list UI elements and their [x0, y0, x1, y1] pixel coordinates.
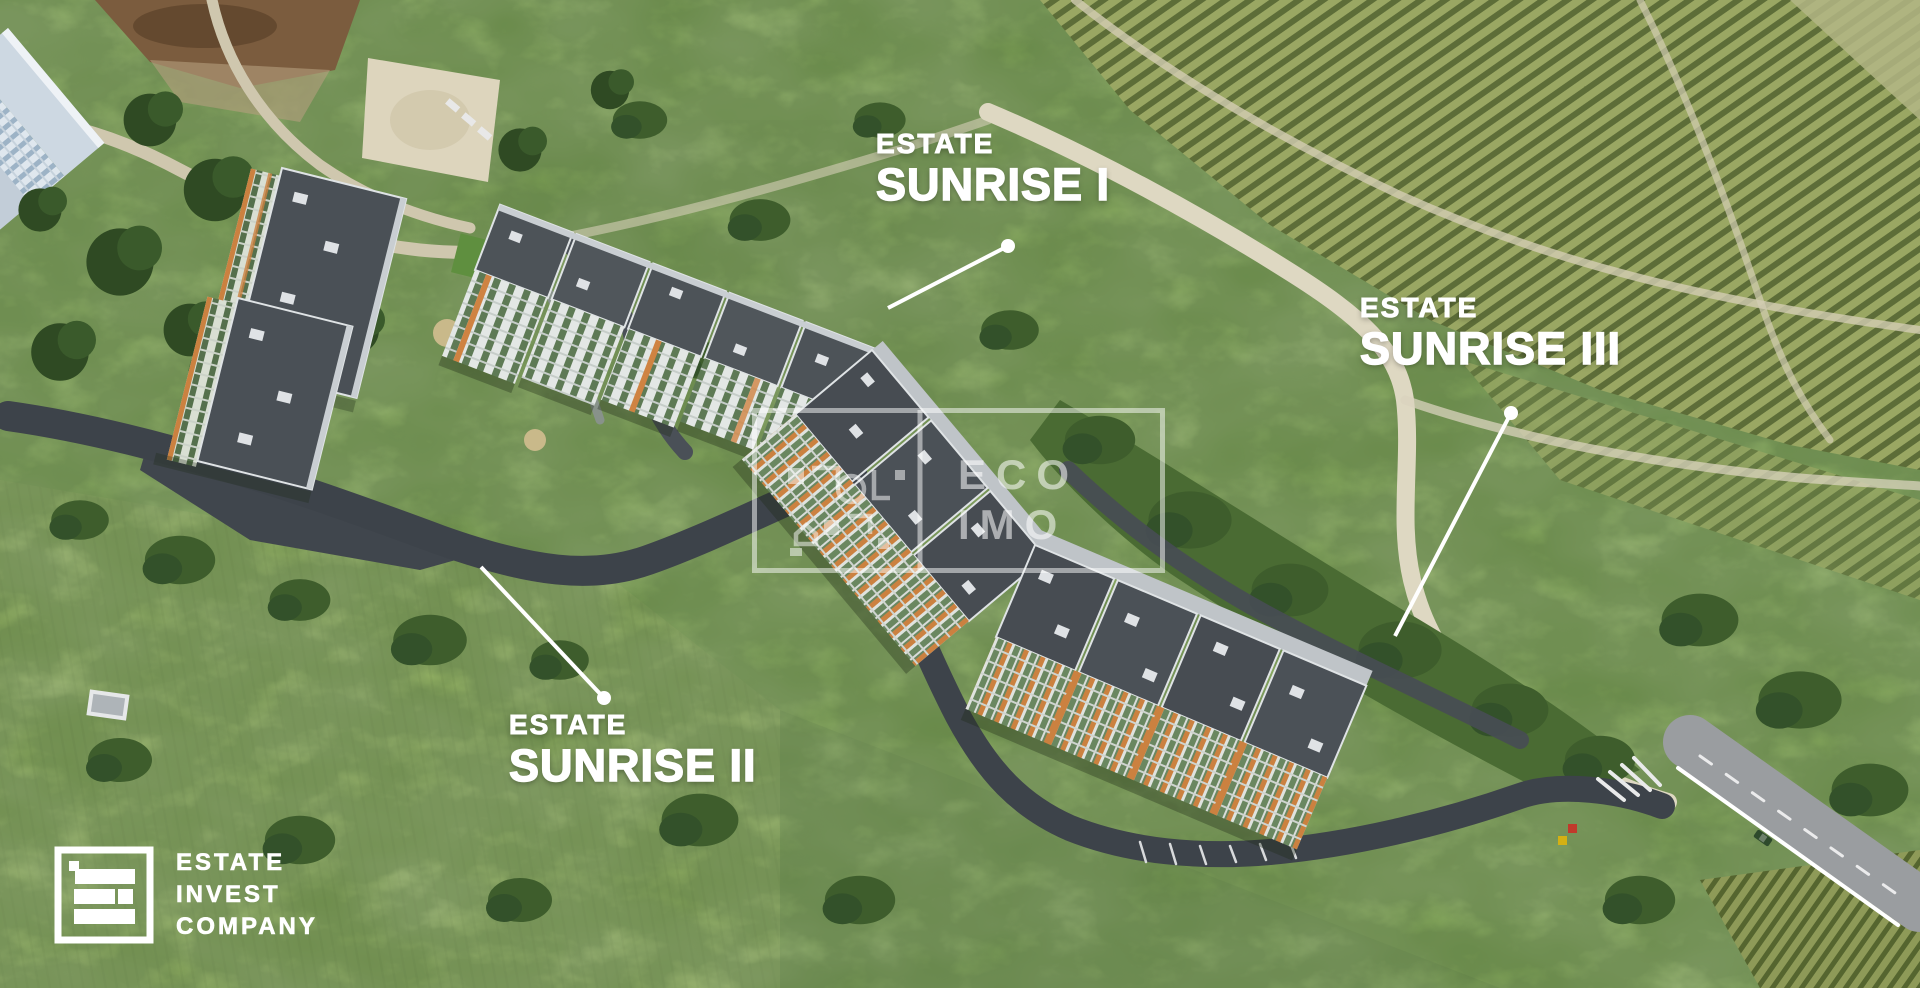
- leader-dot-sunrise-1: [1001, 239, 1015, 253]
- company-logo-name: ESTATE INVEST COMPANY: [176, 847, 318, 943]
- company-logo-icon: [54, 846, 154, 944]
- company-name-line-3: COMPANY: [176, 911, 318, 943]
- label-sunrise-2-eyebrow: ESTATE: [509, 711, 757, 739]
- label-estate-sunrise-3: ESTATE SUNRISE III: [1360, 294, 1621, 371]
- label-estate-sunrise-1: ESTATE SUNRISE I: [876, 130, 1110, 207]
- estate-invest-company-logo: ESTATE INVEST COMPANY: [54, 846, 318, 944]
- company-name-line-2: INVEST: [176, 879, 318, 911]
- watermark-line-2: IMO: [958, 500, 1079, 550]
- label-sunrise-3-eyebrow: ESTATE: [1360, 294, 1621, 322]
- watermark-text: ECO IMO: [958, 450, 1079, 549]
- label-sunrise-3-title: SUNRISE III: [1360, 326, 1621, 371]
- label-sunrise-1-title: SUNRISE I: [876, 162, 1110, 207]
- label-sunrise-1-eyebrow: ESTATE: [876, 130, 1110, 158]
- leader-dot-sunrise-3: [1504, 406, 1518, 420]
- label-estate-sunrise-2: ESTATE SUNRISE II: [509, 711, 757, 788]
- company-name-line-1: ESTATE: [176, 847, 318, 879]
- watermark-line-1: ECO: [958, 450, 1079, 500]
- leader-dot-sunrise-2: [597, 691, 611, 705]
- aerial-render-page: ESTATE SUNRISE I ESTATE SUNRISE III ESTA…: [0, 0, 1920, 988]
- label-sunrise-2-title: SUNRISE II: [509, 743, 757, 788]
